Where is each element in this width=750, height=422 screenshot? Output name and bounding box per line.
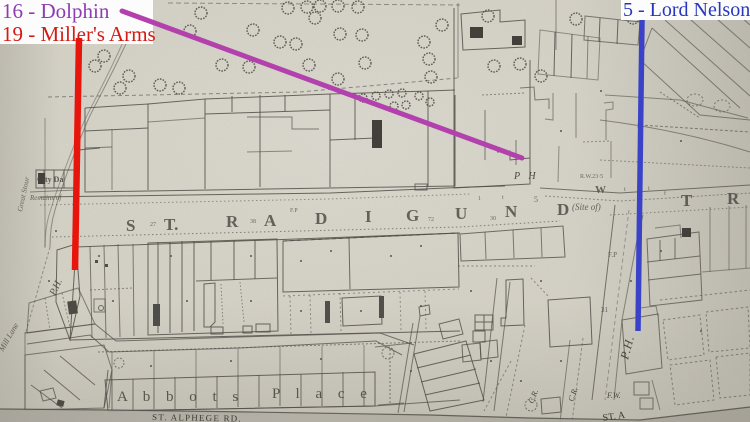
svg-text:16 - Dolphin: 16 - Dolphin xyxy=(2,0,110,23)
svg-text:5 - Lord Nelson: 5 - Lord Nelson xyxy=(623,0,750,21)
svg-text:19 - Miller's Arms: 19 - Miller's Arms xyxy=(2,22,156,46)
